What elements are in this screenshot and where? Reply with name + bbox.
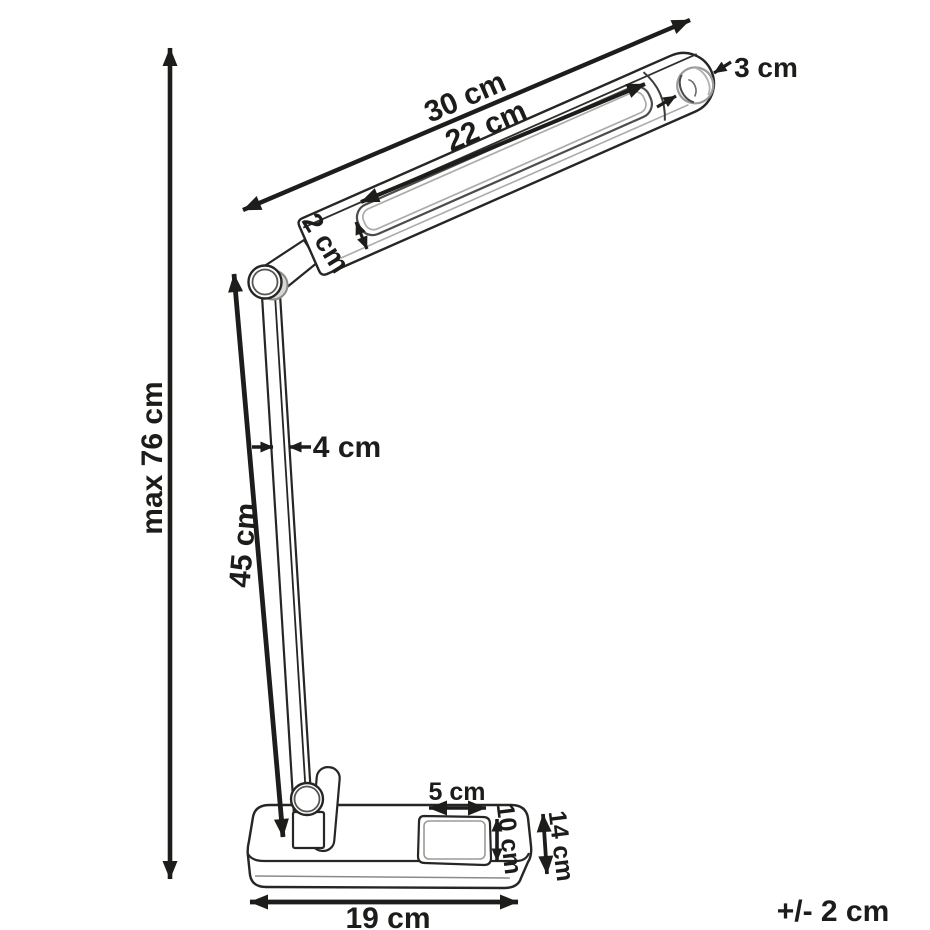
arm (262, 294, 312, 815)
dim-knob-diameter-label: 3 cm (734, 52, 798, 83)
dim-arm-width-label: 4 cm (313, 431, 381, 464)
lower-joint (291, 783, 323, 815)
base-mount-block (293, 812, 324, 848)
touch-pad (418, 816, 491, 865)
diagram-stage: max 76 cm 30 cm 22 cm 3 cm 2 cm 4 cm 45 … (0, 0, 930, 930)
upper-joint (249, 266, 282, 299)
dim-arm-length-label: 45 cm (223, 501, 263, 589)
dim-base-width-label: 19 cm (345, 902, 430, 930)
dim-knob-arrow-right (714, 62, 731, 73)
tolerance-note: +/- 2 cm (777, 895, 890, 928)
dim-pad-width-label: 5 cm (429, 778, 486, 806)
dim-max-height-label: max 76 cm (136, 381, 169, 534)
lamp-dimension-diagram: max 76 cm 30 cm 22 cm 3 cm 2 cm 4 cm 45 … (0, 0, 930, 930)
